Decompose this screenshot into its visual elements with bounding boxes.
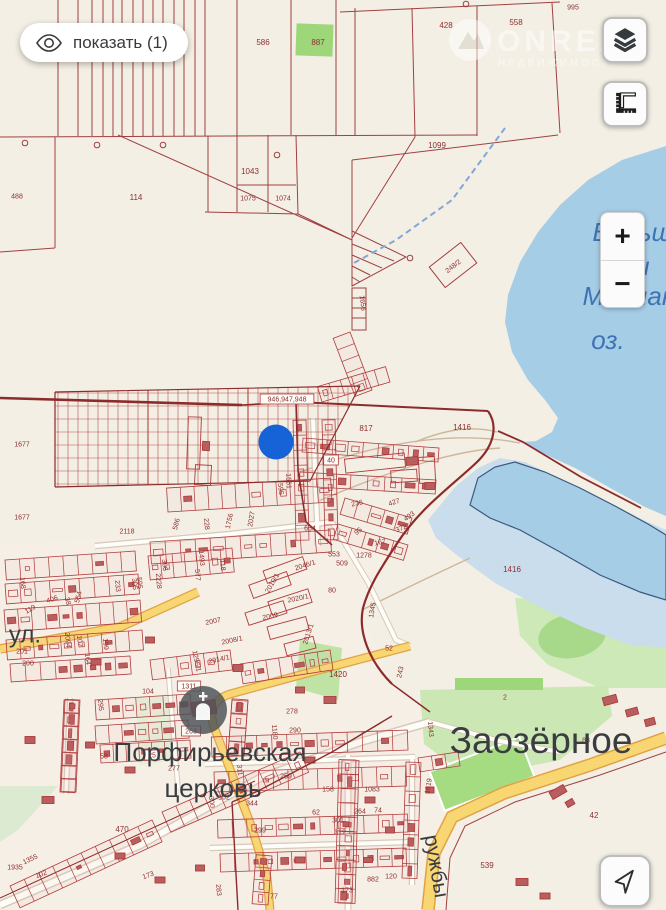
svg-text:595: 595 <box>276 483 284 495</box>
svg-text:2228: 2228 <box>154 573 162 589</box>
svg-text:40: 40 <box>327 457 335 464</box>
svg-text:200: 200 <box>22 660 34 667</box>
svg-text:233: 233 <box>113 580 121 592</box>
svg-text:114: 114 <box>130 193 143 202</box>
map-app-screen: 4285589955868874881141043107510741099248… <box>0 0 666 910</box>
svg-text:173: 173 <box>341 887 353 894</box>
svg-text:306: 306 <box>160 559 168 571</box>
svg-text:470: 470 <box>115 825 129 834</box>
layers-icon <box>608 23 642 57</box>
svg-text:488: 488 <box>11 193 23 200</box>
svg-text:1561: 1561 <box>284 473 292 489</box>
svg-text:428: 428 <box>439 21 453 30</box>
svg-text:577: 577 <box>193 569 201 581</box>
ruler-icon <box>608 87 642 121</box>
svg-text:ул.: ул. <box>9 621 41 648</box>
svg-text:1677: 1677 <box>14 441 30 448</box>
show-objects-label: показать (1) <box>73 33 168 53</box>
svg-text:199: 199 <box>101 638 109 650</box>
svg-text:2: 2 <box>503 694 507 701</box>
svg-text:1416: 1416 <box>503 565 521 574</box>
selected-parcel-marker[interactable] <box>259 425 294 460</box>
svg-text:120: 120 <box>385 873 397 880</box>
svg-text:1074: 1074 <box>275 195 291 202</box>
svg-text:654: 654 <box>304 525 316 532</box>
eye-icon <box>36 34 62 52</box>
svg-text:553: 553 <box>328 551 340 558</box>
svg-text:Заозёрное: Заозёрное <box>450 720 633 761</box>
svg-text:168: 168 <box>18 577 26 589</box>
svg-text:817: 817 <box>359 424 373 433</box>
svg-text:264: 264 <box>354 808 366 815</box>
locate-me-button[interactable] <box>599 855 651 907</box>
svg-text:305: 305 <box>130 578 138 590</box>
svg-text:278: 278 <box>286 708 298 715</box>
svg-text:586: 586 <box>256 38 270 47</box>
svg-text:53: 53 <box>100 753 108 760</box>
location-arrow-icon <box>607 863 643 899</box>
svg-text:1278: 1278 <box>356 552 372 559</box>
layers-button[interactable] <box>602 17 648 63</box>
zoom-out-button[interactable]: − <box>601 260 644 308</box>
svg-text:1493: 1493 <box>197 550 205 566</box>
zoom-in-button[interactable]: + <box>601 213 644 260</box>
map-canvas[interactable]: 4285589955868874881141043107510741099248… <box>0 0 666 910</box>
svg-text:259: 259 <box>280 773 292 780</box>
svg-text:62: 62 <box>312 809 320 816</box>
svg-text:77: 77 <box>270 893 278 900</box>
svg-text:158: 158 <box>322 786 334 793</box>
watermark-subtext: НЕДВИЖИМОСТЬ <box>498 58 621 69</box>
svg-text:312: 312 <box>334 829 346 836</box>
svg-text:104: 104 <box>142 688 154 695</box>
svg-text:946,947,948: 946,947,948 <box>268 396 307 403</box>
svg-text:80: 80 <box>328 587 336 594</box>
svg-text:1677: 1677 <box>14 514 30 521</box>
svg-text:42: 42 <box>590 811 599 820</box>
svg-text:1935: 1935 <box>7 864 23 871</box>
show-objects-button[interactable]: показать (1) <box>20 23 188 62</box>
svg-text:1420: 1420 <box>329 670 347 679</box>
svg-text:1343: 1343 <box>426 721 434 737</box>
svg-text:299: 299 <box>254 827 266 834</box>
svg-text:882: 882 <box>367 876 379 883</box>
svg-text:1075: 1075 <box>240 195 256 202</box>
svg-text:283: 283 <box>214 884 222 896</box>
svg-text:оз.: оз. <box>591 325 624 355</box>
svg-text:539: 539 <box>480 861 494 870</box>
svg-text:295: 295 <box>96 699 104 711</box>
svg-text:290: 290 <box>289 727 301 734</box>
svg-text:887: 887 <box>311 38 325 47</box>
svg-text:107: 107 <box>75 635 83 647</box>
svg-text:74: 74 <box>374 807 382 814</box>
svg-text:228: 228 <box>202 518 210 530</box>
church-poi-icon[interactable] <box>179 686 227 734</box>
svg-text:509: 509 <box>336 560 348 567</box>
svg-text:церковь: церковь <box>164 773 261 803</box>
svg-text:Порфирьевская: Порфирьевская <box>114 737 307 767</box>
svg-text:1043: 1043 <box>241 167 259 176</box>
svg-text:2118: 2118 <box>119 528 134 535</box>
svg-text:164: 164 <box>83 653 91 665</box>
zoom-control: + − <box>600 212 645 308</box>
svg-text:995: 995 <box>567 4 579 11</box>
svg-text:201: 201 <box>16 648 28 655</box>
svg-text:1416: 1416 <box>453 423 471 432</box>
svg-text:118: 118 <box>218 559 226 571</box>
svg-text:2094: 2094 <box>63 632 71 648</box>
measure-button[interactable] <box>602 81 648 127</box>
svg-text:1099: 1099 <box>428 141 446 150</box>
svg-text:301: 301 <box>332 817 344 824</box>
svg-text:1083: 1083 <box>364 786 380 793</box>
svg-text:52: 52 <box>385 645 393 652</box>
